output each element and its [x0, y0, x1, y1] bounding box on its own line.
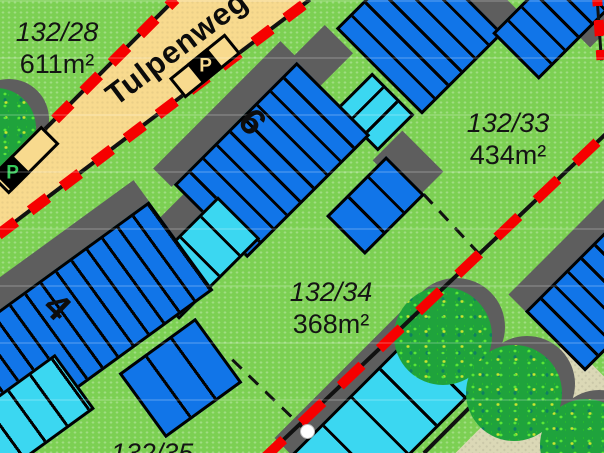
parcel-label-132-35: 132/35 [92, 438, 212, 453]
parcel-id: 132/34 [271, 277, 391, 309]
parcel-area: 611m² [0, 49, 117, 81]
parcel-id: 132/33 [448, 108, 568, 140]
parcel-label-132-34: 132/34 368m² [271, 277, 391, 341]
parcel-area: 434m² [448, 140, 568, 172]
map-canvas[interactable]: P P Tulpenweg 132/28 611m² 132/33 434m² … [0, 0, 604, 453]
parcel-label-132-28: 132/28 611m² [0, 17, 117, 81]
parcel-area: 368m² [271, 309, 391, 341]
survey-point-dot [300, 424, 315, 439]
boundary-red-dashes-corner [592, 0, 604, 60]
parcel-label-132-33: 132/33 434m² [448, 108, 568, 172]
parking-sign-letter: P [199, 57, 212, 76]
parcel-id: 132/28 [0, 17, 117, 49]
parcel-id: 132/35 [92, 438, 212, 453]
parcel-division-dashed-line [423, 193, 479, 253]
parking-sign-letter: P [6, 164, 19, 183]
